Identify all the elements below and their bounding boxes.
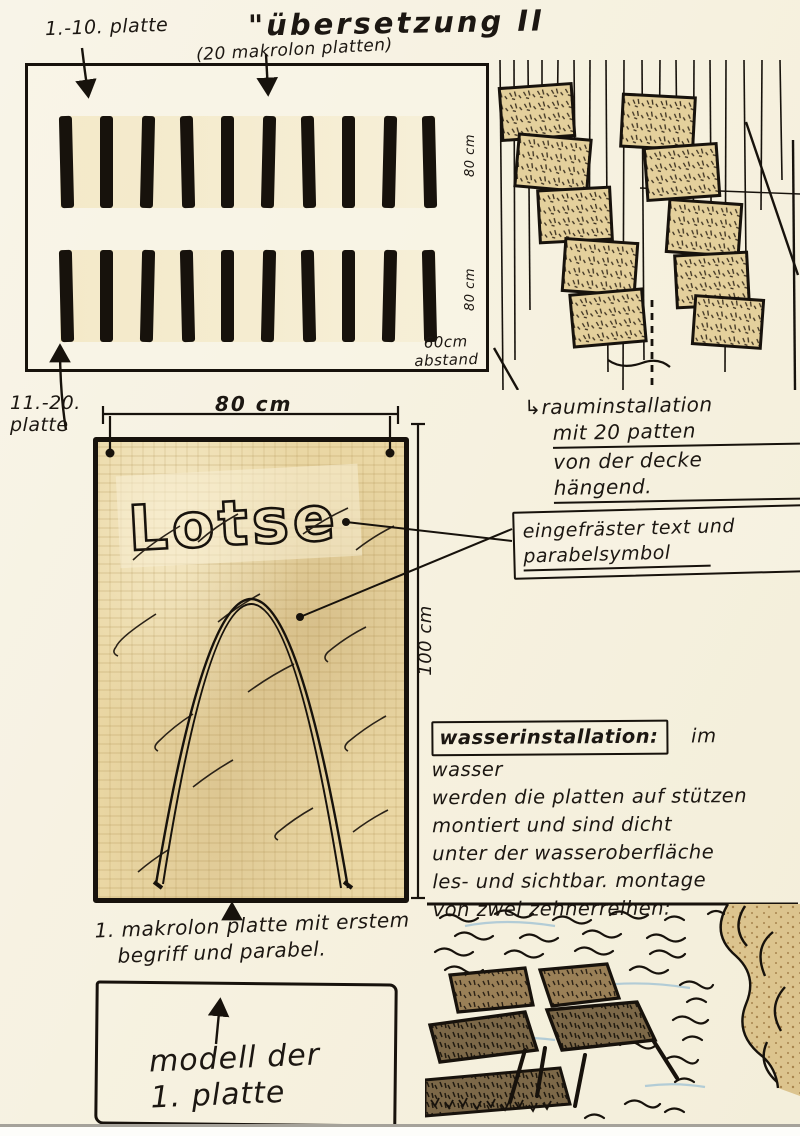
dim-gap-60cm: 60cm abstand [413, 332, 478, 370]
plate-bar [342, 116, 355, 208]
plate-bar [221, 250, 234, 342]
label-plates-11-20-l1: 11.-20. [10, 392, 81, 414]
plate-bar [422, 250, 437, 342]
water-installation-sketch [425, 890, 800, 1136]
model-label-line1: modell der [148, 1037, 320, 1080]
engrave-line1: eingefräster text und [522, 512, 795, 544]
engrave-line2: parabelsymbol [523, 540, 711, 572]
submerged-plates [425, 964, 655, 1116]
note-engraved-text: eingefräster text und parabelsymbol [512, 504, 800, 580]
plate-bar [140, 116, 155, 208]
shoreline [721, 904, 800, 1096]
wasser-line4: unter der wasseroberfläche [432, 838, 792, 869]
plate-bar [301, 250, 316, 342]
plate-bar [100, 116, 113, 208]
lotse-panel-model: Lotse [93, 437, 409, 903]
plate-row-1 [60, 116, 436, 208]
wasser-line2: werden die platten auf stützen [432, 782, 792, 813]
raum-line1: rauminstallation [541, 392, 712, 419]
dim-gap-word: abstand [414, 350, 479, 370]
page-subtitle: (20 makrolon platten) [196, 35, 394, 65]
raum-line3: von der decke hängend. [553, 445, 800, 504]
page-title: "übersetzung II [248, 3, 545, 42]
plate-bar [342, 250, 355, 342]
plate-bar [301, 116, 316, 208]
model-label-line2: 1. platte [150, 1073, 322, 1116]
plate-bar [100, 250, 113, 342]
plate-row-2 [60, 250, 436, 342]
scan-edge [0, 1124, 800, 1136]
label-plates-11-20: 11.-20. platte [10, 392, 81, 436]
corner-arrow-icon: ↳ [524, 395, 542, 419]
panel-parabola [154, 599, 352, 888]
panel-word-lotse: Lotse [126, 481, 340, 565]
plate-bar [140, 250, 155, 342]
raum-line2: mit 20 patten [553, 416, 800, 449]
plate-bar [382, 250, 397, 342]
note-rauminstallation: ↳rauminstallation mit 20 patten von der … [524, 390, 800, 505]
sketch-page: { "colors":{"paper":"#f7f2e2","ink":"#17… [0, 0, 800, 1136]
label-plates-11-20-l2: platte [10, 414, 81, 436]
hanging-plate-group [499, 84, 763, 349]
plate-bar [221, 116, 234, 208]
hanging-plates-sketch [490, 60, 800, 390]
plate-bar [180, 116, 195, 208]
plate-bar [180, 250, 195, 342]
model-label-box: modell der 1. platte [94, 980, 397, 1127]
dim-height-100cm: 100 cm [415, 605, 436, 676]
dim-row1-80cm: 80 cm [463, 134, 478, 177]
wasser-header: wasserinstallation: [431, 720, 668, 757]
dim-gap-value: 60cm [413, 332, 478, 352]
panel-artwork: Lotse [98, 442, 404, 898]
label-plates-1-10: 1.-10. platte [45, 14, 169, 40]
dim-row2-80cm: 80 cm [463, 268, 478, 311]
plate-bar [261, 250, 276, 342]
plate-bar [59, 116, 74, 208]
plate-bar [59, 250, 74, 342]
dim-width-80cm: 80 cm [215, 392, 293, 416]
plate-bar [382, 116, 397, 208]
plate-bar [422, 116, 437, 208]
wasser-line3: montiert und sind dicht [432, 810, 792, 841]
plate-grid-diagram: 80 cm 80 cm 60cm abstand [25, 63, 489, 372]
caption-first-plate: 1. makrolon platte mit erstem begriff un… [94, 907, 411, 970]
model-label-text: modell der 1. platte [148, 1037, 322, 1116]
plate-bar [261, 116, 276, 208]
